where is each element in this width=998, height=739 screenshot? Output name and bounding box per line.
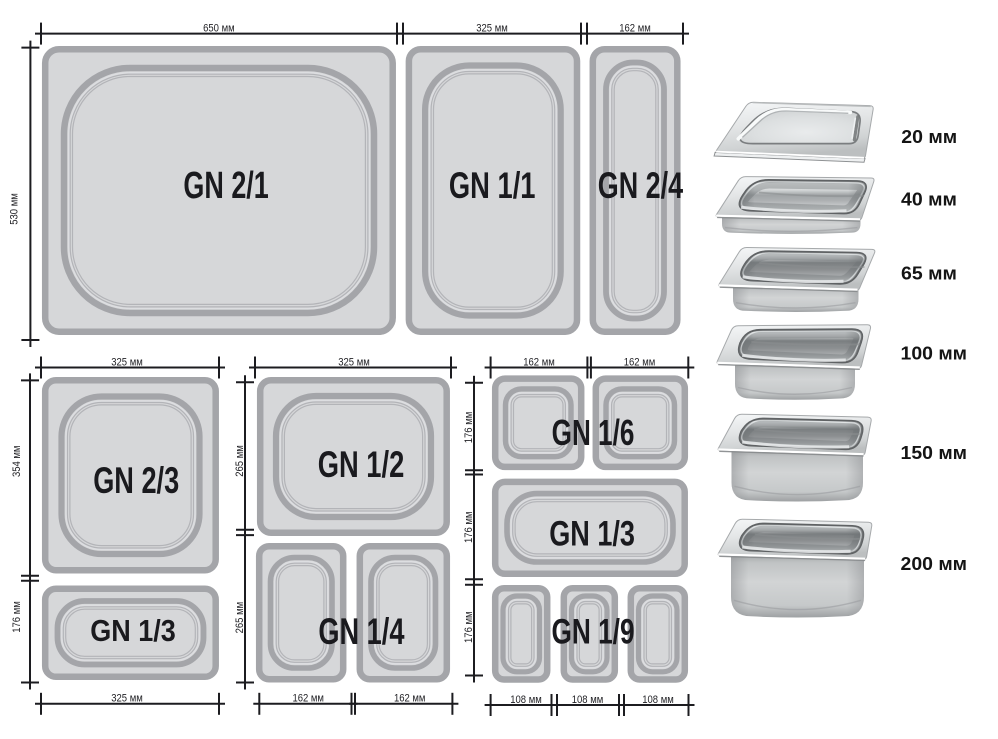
svg-text:100 мм: 100 мм <box>901 343 968 364</box>
svg-text:162 мм: 162 мм <box>394 693 426 705</box>
svg-text:40 мм: 40 мм <box>901 188 957 209</box>
svg-text:530 мм: 530 мм <box>8 193 20 225</box>
svg-text:GN 1/6: GN 1/6 <box>552 412 635 453</box>
svg-text:108 мм: 108 мм <box>572 694 604 706</box>
svg-text:325 мм: 325 мм <box>111 356 143 368</box>
svg-text:GN 1/3: GN 1/3 <box>90 613 176 648</box>
svg-text:108 мм: 108 мм <box>510 694 542 706</box>
svg-text:GN 1/2: GN 1/2 <box>318 443 405 485</box>
svg-text:325 мм: 325 мм <box>476 22 508 34</box>
svg-text:108 мм: 108 мм <box>642 694 674 706</box>
svg-text:650 мм: 650 мм <box>203 22 235 34</box>
svg-text:176 мм: 176 мм <box>463 512 475 544</box>
svg-text:265 мм: 265 мм <box>234 602 246 634</box>
svg-text:162 мм: 162 мм <box>523 356 555 368</box>
svg-text:176 мм: 176 мм <box>463 611 475 643</box>
svg-text:200 мм: 200 мм <box>901 553 968 574</box>
svg-text:20 мм: 20 мм <box>901 126 957 147</box>
svg-text:GN 1/9: GN 1/9 <box>551 611 634 651</box>
svg-text:325 мм: 325 мм <box>338 356 370 368</box>
svg-text:325 мм: 325 мм <box>111 693 143 705</box>
svg-text:265 мм: 265 мм <box>234 445 246 477</box>
svg-text:162 мм: 162 мм <box>619 22 651 34</box>
svg-text:176 мм: 176 мм <box>11 601 23 633</box>
svg-text:GN 1/4: GN 1/4 <box>318 611 404 652</box>
svg-text:354 мм: 354 мм <box>11 446 23 478</box>
svg-text:65 мм: 65 мм <box>901 263 957 284</box>
svg-text:GN 1/3: GN 1/3 <box>549 514 635 554</box>
svg-text:150 мм: 150 мм <box>901 442 968 463</box>
svg-text:162 мм: 162 мм <box>292 693 324 705</box>
svg-text:GN 2/3: GN 2/3 <box>93 459 179 501</box>
svg-text:162 мм: 162 мм <box>624 356 656 368</box>
svg-text:GN 1/1: GN 1/1 <box>449 164 536 206</box>
svg-text:GN 2/1: GN 2/1 <box>183 165 268 207</box>
svg-text:GN 2/4: GN 2/4 <box>598 164 684 206</box>
svg-text:176 мм: 176 мм <box>463 412 475 444</box>
